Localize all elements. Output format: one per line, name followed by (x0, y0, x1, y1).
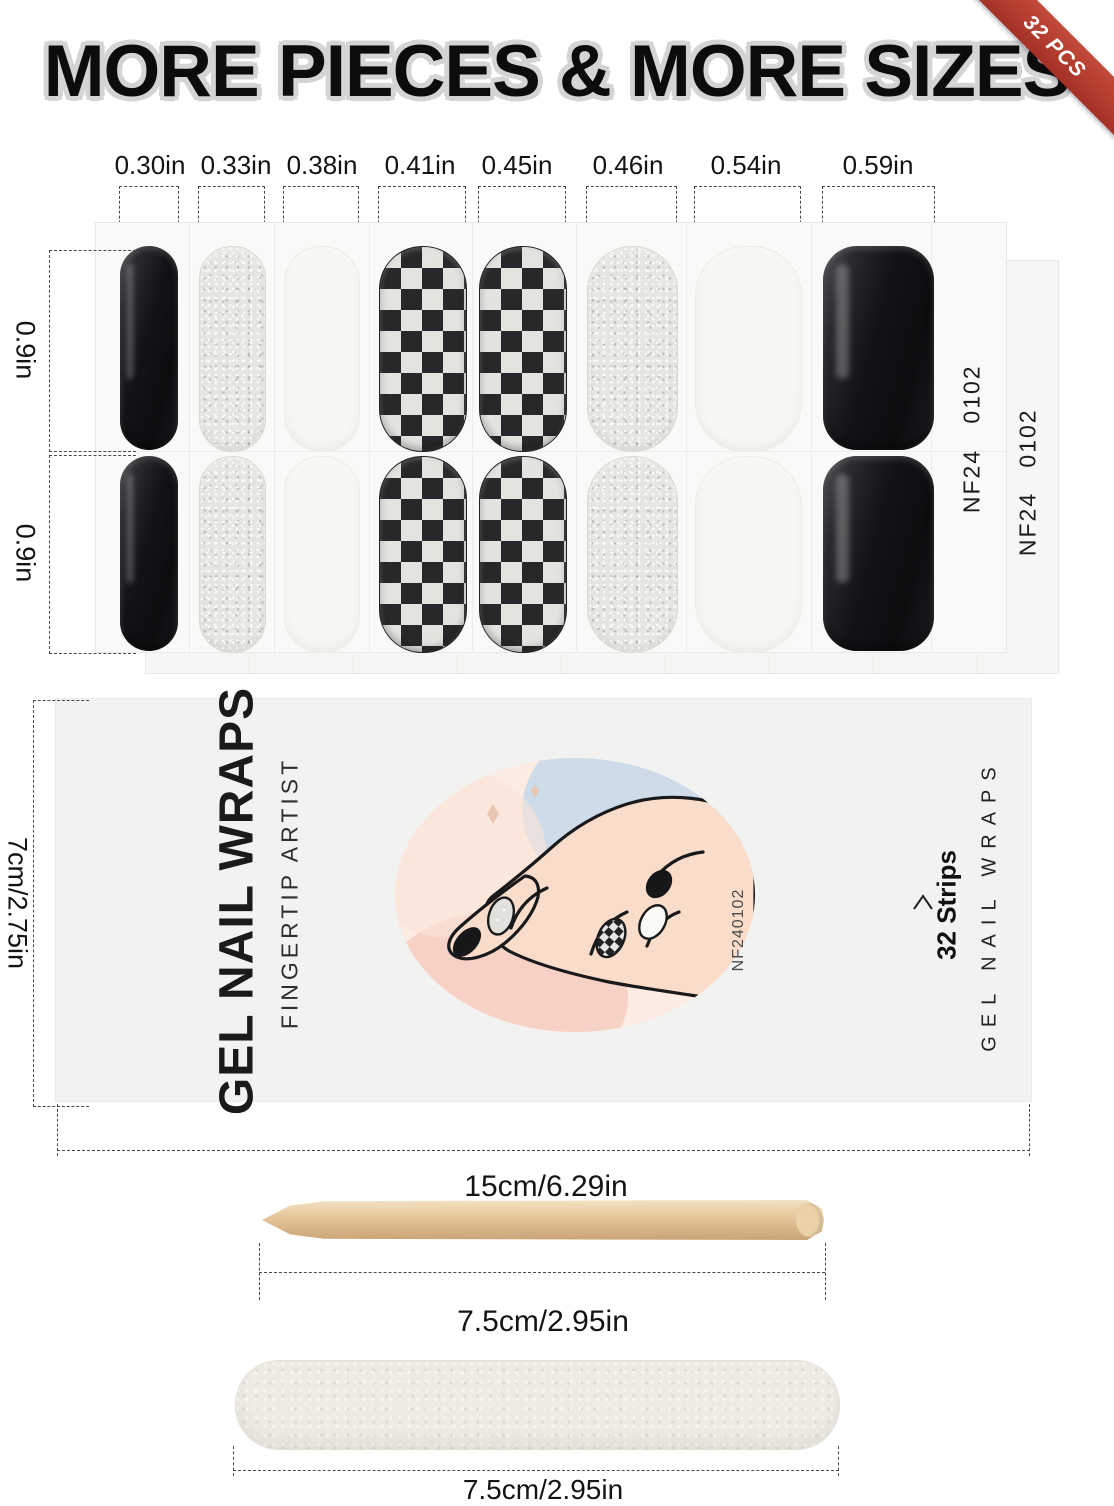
package-height-label: 7cm/2.75in (2, 837, 33, 969)
nail-strip-glitter (587, 246, 678, 452)
row1-height-label: 0.9in (10, 321, 41, 380)
nail-strip-black-large (823, 456, 934, 651)
sheet-series-code: NF24 (959, 449, 986, 513)
measure-tick (838, 1446, 839, 1476)
height-bracket-row1 (49, 250, 136, 452)
file-length-label: 7.5cm/2.95in (393, 1474, 693, 1506)
sheet-divider (369, 223, 370, 652)
size-label-8: 0.59in (818, 150, 938, 181)
nail-strip-white (284, 456, 360, 653)
glitter-dot (503, 909, 506, 912)
stick-length-label: 7.5cm/2.95in (393, 1305, 693, 1339)
nail-strip-checkered (379, 246, 467, 452)
stick-measure-line (259, 1272, 825, 1273)
package-product-code: NF240102 (730, 889, 748, 972)
page-title: MORE PIECES & MORE SIZES (0, 30, 1114, 113)
measure-tick (1029, 1104, 1030, 1156)
cuticle-stick-end (796, 1203, 822, 1237)
nail-strip-black-large (823, 246, 934, 450)
nail-strip-glitter (199, 246, 266, 452)
package-side-brand: GEL NAIL WRAPS (979, 758, 1002, 1051)
sheet-divider (686, 223, 687, 652)
package-width-label: 15cm/6.29in (396, 1170, 696, 1204)
sheet-color-code: 0102 (959, 364, 986, 423)
sheet-divider (189, 223, 190, 652)
nail-strip-glitter (199, 456, 266, 653)
nail-strip-glitter (587, 456, 678, 653)
nail-strip-checkered (479, 246, 567, 452)
measure-tick (233, 1446, 234, 1476)
file-measure-line (233, 1470, 839, 1471)
package-width-measure-line (57, 1150, 1030, 1151)
size-label-5: 0.45in (457, 150, 577, 181)
cuticle-stick (262, 1200, 824, 1240)
package-height-bracket (33, 700, 89, 1107)
nail-sheet-front (95, 222, 1007, 653)
hand-illustration (395, 758, 755, 1032)
package-brand-text: GEL NAIL WRAPS (210, 687, 265, 1115)
measure-tick (825, 1243, 826, 1300)
nail-strip-white (695, 246, 802, 452)
nail-strip-white (695, 456, 802, 653)
nail-strip-checkered (379, 456, 467, 653)
sheet-divider (811, 223, 812, 652)
sheet-divider (472, 223, 473, 652)
size-label-6: 0.46in (568, 150, 688, 181)
sheet-color-code-back: 0102 (1015, 408, 1042, 467)
size-label-7: 0.54in (686, 150, 806, 181)
nail-strip-checkered (479, 456, 567, 653)
nail-file (235, 1360, 840, 1450)
sheet-divider (274, 223, 275, 652)
sheet-divider (576, 223, 577, 652)
glitter-dot (497, 919, 499, 921)
package-tagline-text: FINGERTIP ARTIST (277, 757, 304, 1029)
sheet-series-code-back: NF24 (1015, 492, 1042, 556)
row2-height-label: 0.9in (10, 524, 41, 583)
product-infographic: { "title": "MORE PIECES & MORE SIZES", "… (0, 0, 1114, 1500)
height-bracket-row2 (49, 455, 136, 654)
nail-strip-white (284, 246, 360, 452)
measure-tick (57, 1104, 58, 1156)
strip-count-label: 32 Strips (932, 850, 963, 960)
